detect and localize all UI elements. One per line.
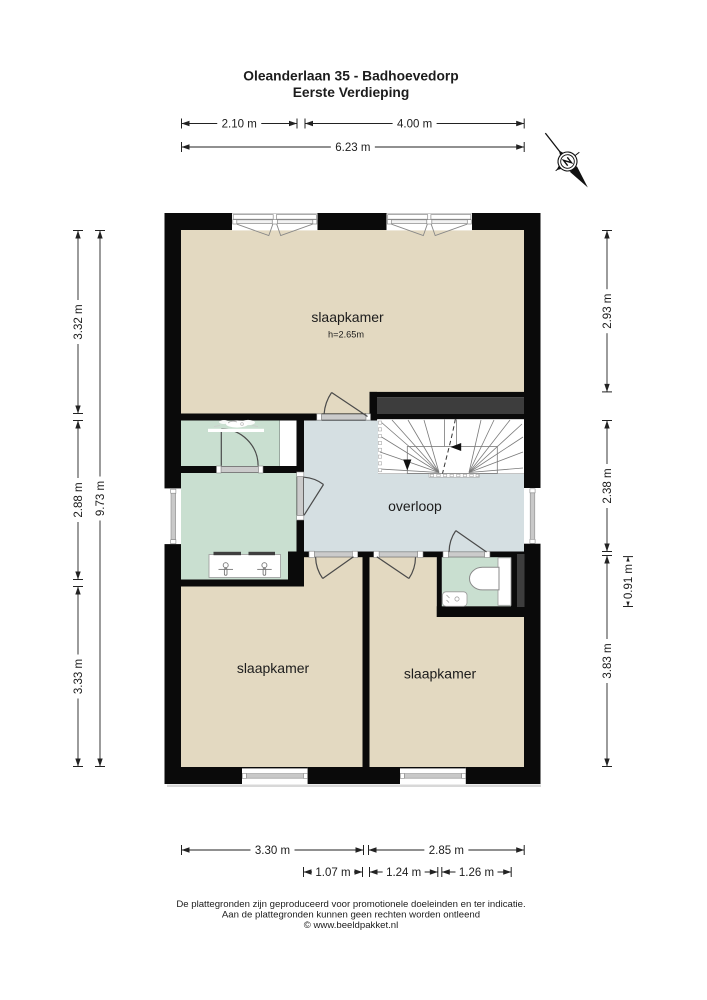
svg-text:2.93 m: 2.93 m bbox=[602, 294, 614, 329]
svg-text:3.32 m: 3.32 m bbox=[73, 304, 85, 339]
svg-text:slaapkamer: slaapkamer bbox=[237, 660, 310, 676]
svg-text:slaapkamer: slaapkamer bbox=[311, 309, 384, 325]
svg-text:3.83 m: 3.83 m bbox=[602, 643, 614, 678]
svg-text:3.33 m: 3.33 m bbox=[73, 659, 85, 694]
svg-text:overloop: overloop bbox=[388, 498, 442, 514]
svg-text:2.38 m: 2.38 m bbox=[602, 468, 614, 503]
svg-text:9.73 m: 9.73 m bbox=[95, 481, 107, 516]
svg-text:slaapkamer: slaapkamer bbox=[404, 666, 477, 682]
svg-text:2.10 m: 2.10 m bbox=[222, 119, 257, 131]
svg-text:2.88 m: 2.88 m bbox=[73, 482, 85, 517]
svg-text:Aan de plattegronden kunnen ge: Aan de plattegronden kunnen geen rechten… bbox=[222, 910, 480, 921]
svg-text:2.85 m: 2.85 m bbox=[429, 845, 464, 857]
svg-text:6.23 m: 6.23 m bbox=[335, 142, 370, 154]
svg-text:Oleanderlaan 35 - Badhoevedorp: Oleanderlaan 35 - Badhoevedorp bbox=[243, 69, 458, 84]
svg-text:De plattegronden zijn geproduc: De plattegronden zijn geproduceerd voor … bbox=[176, 899, 525, 910]
svg-text:h=2.65m: h=2.65m bbox=[328, 330, 364, 340]
svg-text:1.26 m: 1.26 m bbox=[459, 867, 494, 879]
svg-text:© www.beeldpakket.nl: © www.beeldpakket.nl bbox=[304, 920, 399, 931]
svg-text:Eerste Verdieping: Eerste Verdieping bbox=[293, 85, 410, 100]
svg-text:1.24 m: 1.24 m bbox=[386, 867, 421, 879]
svg-text:3.30 m: 3.30 m bbox=[255, 845, 290, 857]
svg-text:0.91 m: 0.91 m bbox=[623, 564, 635, 599]
svg-text:4.00 m: 4.00 m bbox=[397, 119, 432, 131]
svg-text:1.07 m: 1.07 m bbox=[315, 867, 350, 879]
